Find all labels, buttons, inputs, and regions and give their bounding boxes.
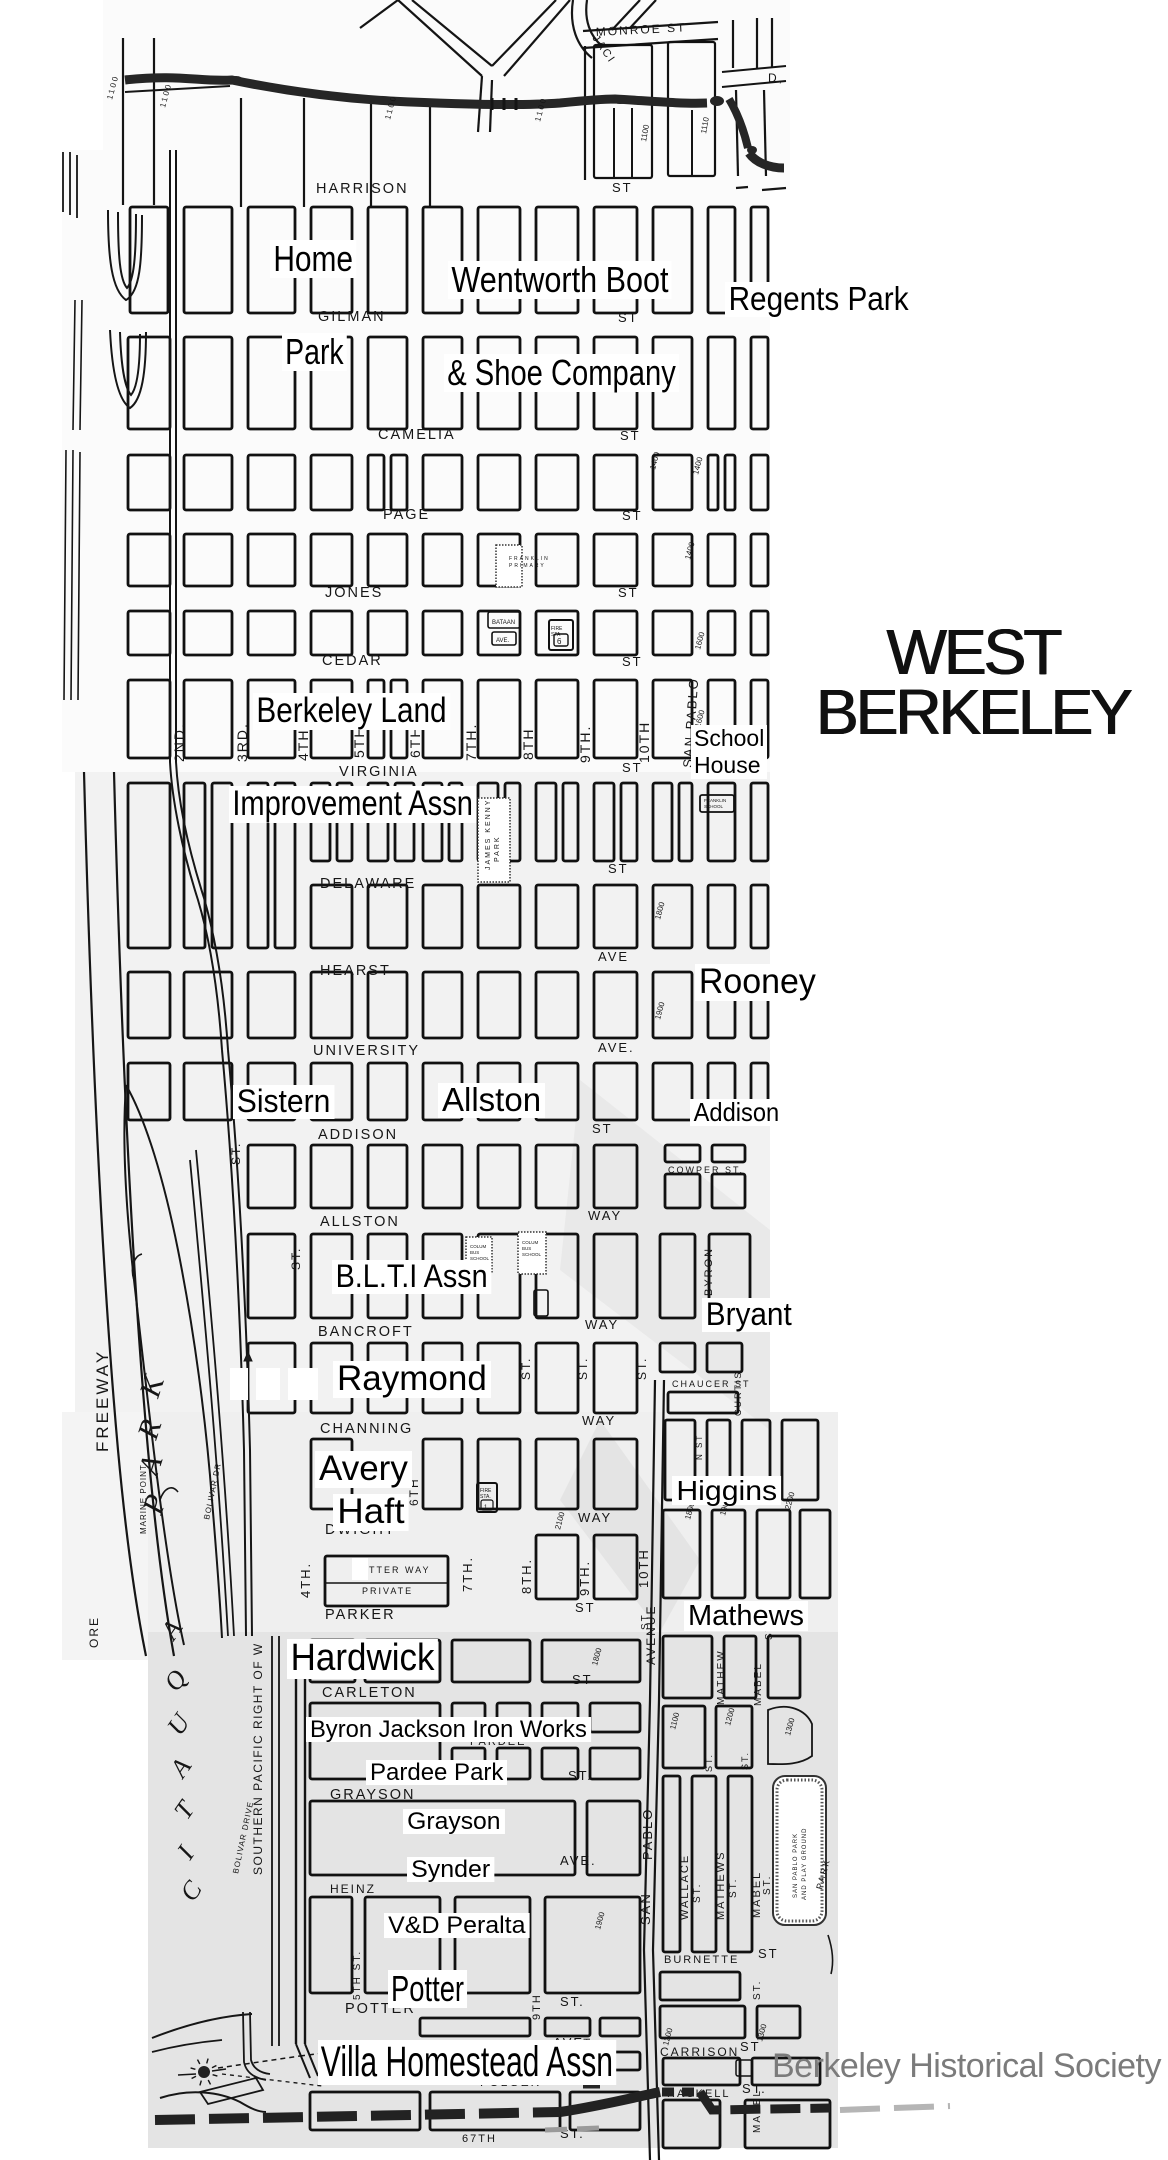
svg-text:WAY: WAY <box>585 1317 619 1332</box>
svg-text:AVE.: AVE. <box>598 1040 635 1055</box>
svg-text:HEINZ: HEINZ <box>330 1882 376 1896</box>
svg-text:PARK: PARK <box>494 835 501 862</box>
svg-text:67TH: 67TH <box>462 2133 497 2145</box>
svg-text:COLUM: COLUM <box>522 1240 539 1245</box>
svg-text:ST.: ST. <box>762 1875 773 1895</box>
svg-text:BANCROFT: BANCROFT <box>318 1324 414 1340</box>
svg-text:PAGE: PAGE <box>383 507 430 523</box>
svg-text:ST: ST <box>608 861 629 876</box>
svg-text:AVE: AVE <box>598 949 629 964</box>
svg-text:CHANNING: CHANNING <box>320 1421 413 1437</box>
svg-text:5TH: 5TH <box>351 726 367 758</box>
svg-text:PARKER: PARKER <box>325 1607 396 1623</box>
svg-text:ADDISON: ADDISON <box>318 1127 398 1143</box>
svg-text:ST: ST <box>622 654 643 669</box>
svg-text:FRANKLIN: FRANKLIN <box>509 556 550 562</box>
svg-text:10TH: 10TH <box>636 1548 651 1588</box>
svg-text:DELAWARE: DELAWARE <box>320 876 416 892</box>
svg-text:9TH: 9TH <box>531 1993 543 2020</box>
svg-text:CAMELIA: CAMELIA <box>378 427 456 443</box>
svg-text:JONES: JONES <box>325 585 383 601</box>
svg-text:7TH.: 7TH. <box>463 723 479 761</box>
svg-text:SCHOOL: SCHOOL <box>522 1252 542 1257</box>
svg-text:ST: ST <box>620 428 641 443</box>
svg-text:ST.: ST. <box>560 1994 585 2009</box>
svg-text:JAMES KENNY: JAMES KENNY <box>485 799 492 870</box>
svg-text:10TH: 10TH <box>636 721 652 763</box>
svg-text:WAY: WAY <box>582 1413 616 1428</box>
svg-text:GILMAN: GILMAN <box>318 309 386 325</box>
svg-text:UNIVERSITY: UNIVERSITY <box>313 1043 420 1059</box>
svg-text:ST: ST <box>592 1121 613 1136</box>
svg-text:7TH.: 7TH. <box>460 1556 475 1592</box>
svg-text:BUS: BUS <box>522 1246 531 1251</box>
svg-text:ST.: ST. <box>576 1357 590 1380</box>
svg-text:COLUM: COLUM <box>470 1244 487 1249</box>
svg-text:STA: STA <box>551 632 561 638</box>
svg-text:SAN PABLO PARK: SAN PABLO PARK <box>793 1833 799 1898</box>
svg-text:BURNETTE: BURNETTE <box>664 1954 739 1966</box>
svg-text:4TH.: 4TH. <box>298 1562 313 1598</box>
svg-text:ST: ST <box>618 585 639 600</box>
svg-text:ST: ST <box>622 508 643 523</box>
svg-text:PRIMARY: PRIMARY <box>509 563 546 569</box>
svg-text:VIRGINIA: VIRGINIA <box>339 764 419 780</box>
svg-text:ST.: ST. <box>635 1357 649 1380</box>
svg-text:AND PLAY GROUND: AND PLAY GROUND <box>802 1828 808 1900</box>
svg-text:ST.: ST. <box>692 1883 703 1903</box>
svg-text:AVE.: AVE. <box>560 1853 597 1868</box>
svg-text:CEDAR: CEDAR <box>322 653 383 669</box>
svg-text:HARRISON: HARRISON <box>316 181 409 197</box>
svg-text:STA.: STA. <box>480 1494 491 1500</box>
svg-text:6: 6 <box>557 637 562 646</box>
svg-text:ST.: ST. <box>640 1610 651 1630</box>
svg-text:ST.: ST. <box>752 1980 763 2000</box>
svg-text:ST.: ST. <box>728 1878 739 1898</box>
svg-text:5TH ST.: 5TH ST. <box>352 1950 363 2000</box>
svg-text:ALLSTON: ALLSTON <box>320 1214 400 1230</box>
svg-text:ST: ST <box>618 310 639 325</box>
svg-text:ST.: ST. <box>289 1247 303 1270</box>
svg-text:SCHOOL: SCHOOL <box>704 804 724 809</box>
svg-text:ST: ST <box>572 1672 593 1687</box>
svg-text:9TH.: 9TH. <box>577 725 593 763</box>
svg-text:WAY: WAY <box>588 1208 622 1223</box>
svg-text:ORE: ORE <box>87 1616 101 1648</box>
svg-text:SOUTHERN PACIFIC RIGHT OF W: SOUTHERN PACIFIC RIGHT OF W <box>251 1642 265 1875</box>
svg-text:ST: ST <box>575 1600 596 1615</box>
svg-text:WAY: WAY <box>578 1510 612 1525</box>
svg-text:8TH.: 8TH. <box>519 1558 534 1594</box>
svg-text:AVE.: AVE. <box>496 638 510 644</box>
svg-text:HEARST: HEARST <box>320 963 391 979</box>
svg-text:BATAAN: BATAAN <box>492 620 515 626</box>
svg-text:CARLETON: CARLETON <box>322 1685 417 1701</box>
svg-text:6TH: 6TH <box>407 726 423 758</box>
svg-text:8TH: 8TH <box>520 728 536 760</box>
svg-text:9TH.: 9TH. <box>577 1560 592 1596</box>
svg-text:ST: ST <box>612 180 633 195</box>
svg-text:FRANKLIN: FRANKLIN <box>704 798 726 803</box>
svg-text:ST: ST <box>758 1946 779 1961</box>
svg-text:3RD.: 3RD. <box>234 722 250 762</box>
svg-text:ST.: ST. <box>519 1357 533 1380</box>
svg-text:MARINE POINT: MARINE POINT <box>139 1464 148 1534</box>
svg-text:BUS: BUS <box>470 1250 479 1255</box>
svg-text:FREEWAY: FREEWAY <box>93 1349 112 1452</box>
svg-text:2ND.: 2ND. <box>171 722 187 762</box>
svg-text:PRIVATE: PRIVATE <box>362 1586 413 1596</box>
